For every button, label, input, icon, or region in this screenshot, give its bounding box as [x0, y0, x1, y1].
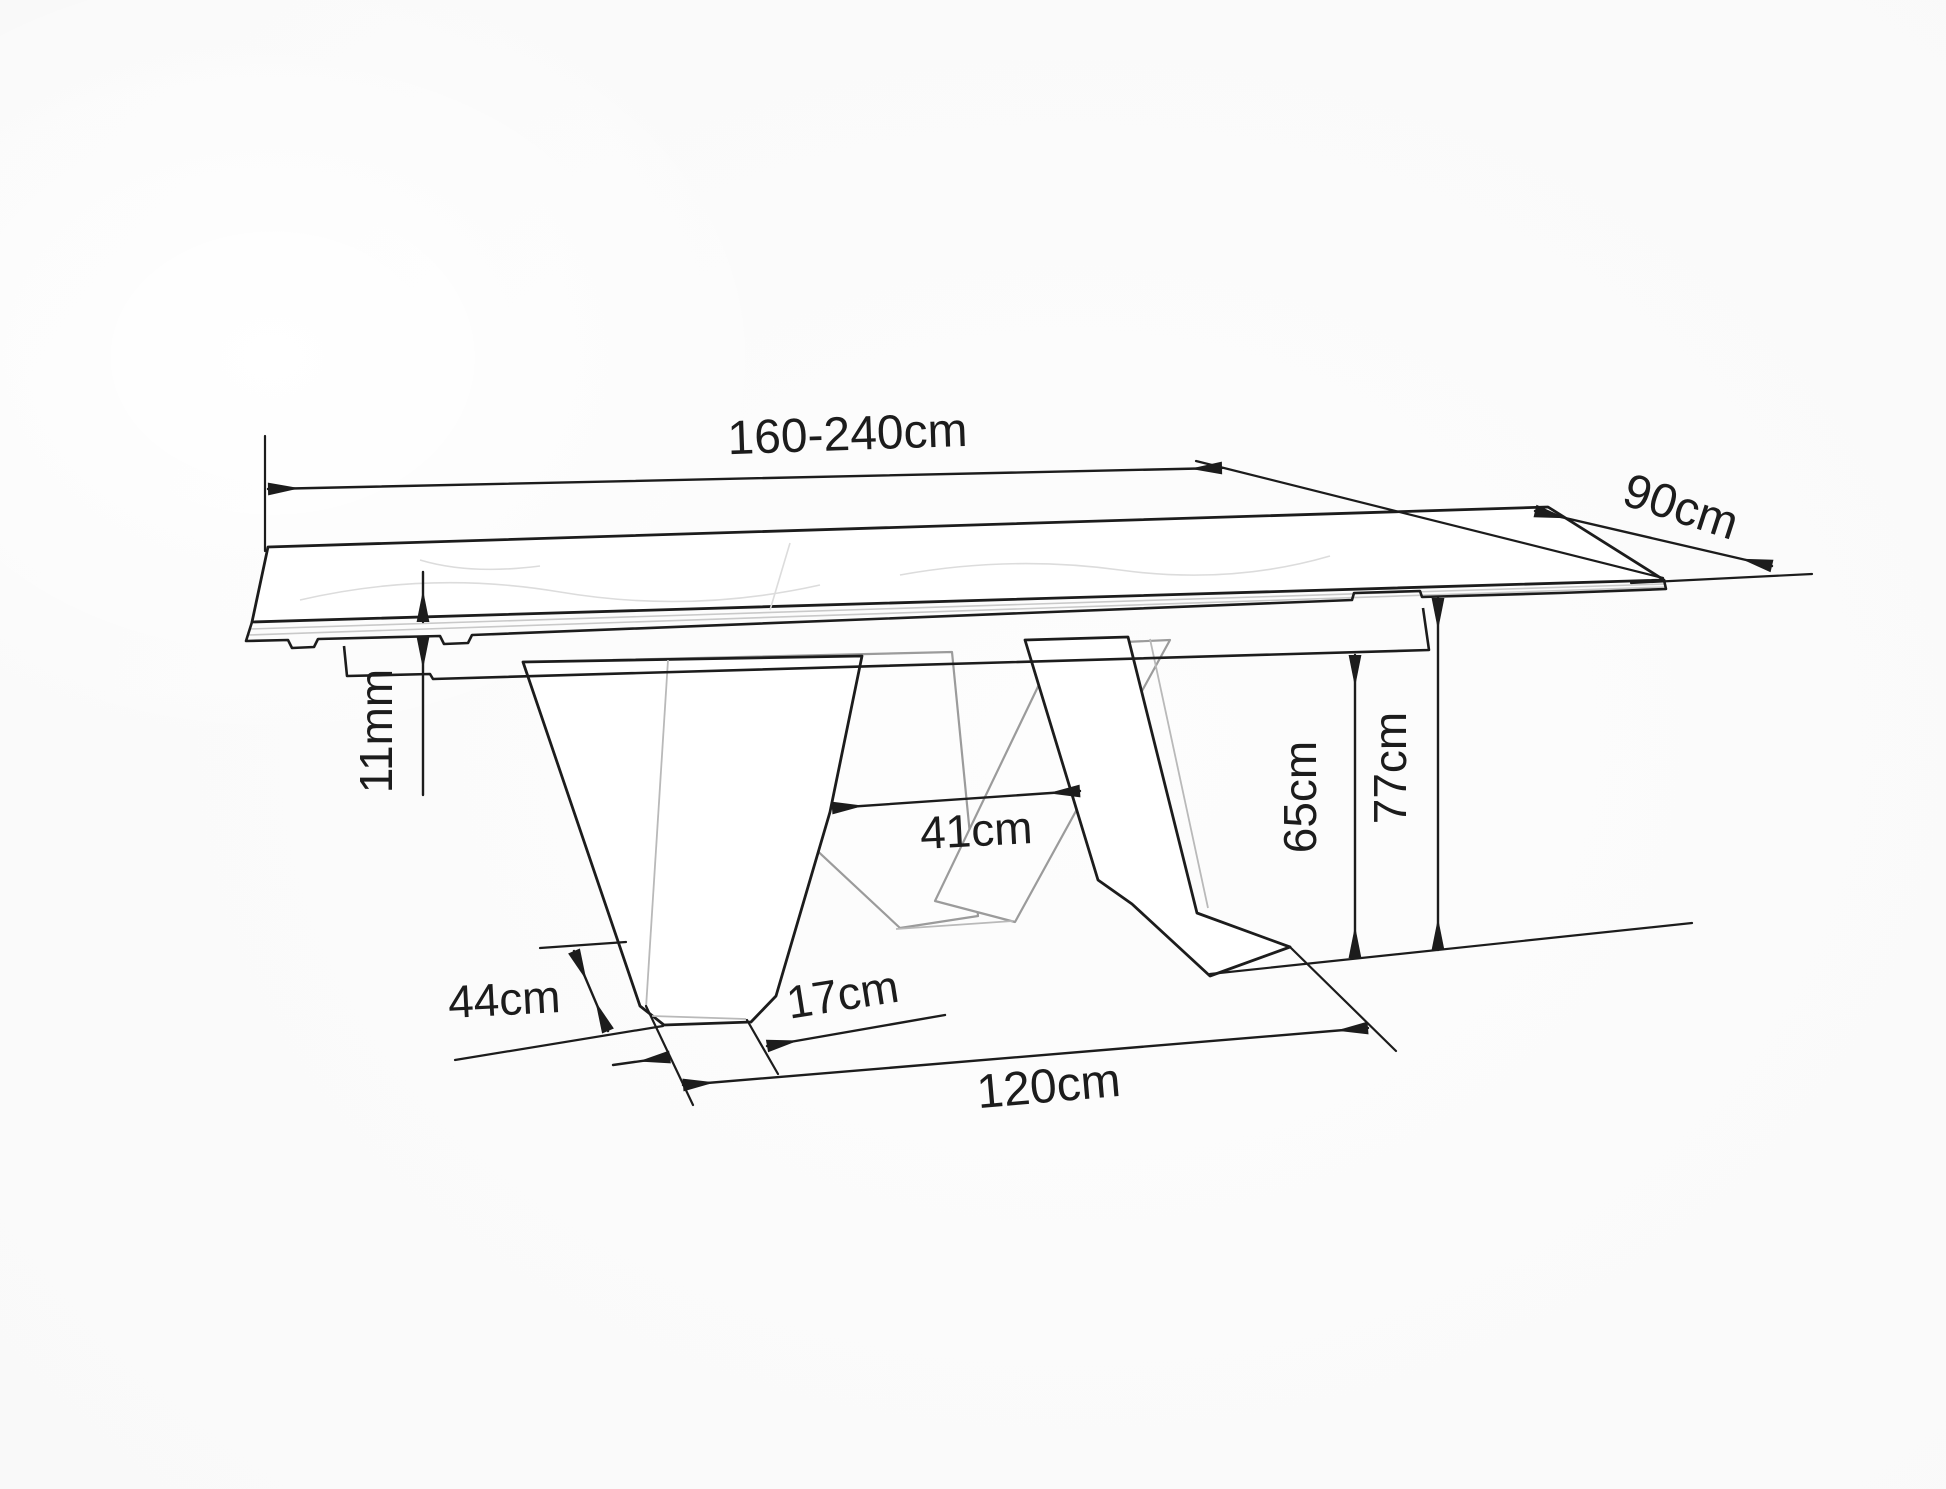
- label-top-thickness: 11mm: [350, 669, 402, 793]
- table-dimension-diagram: 160-240cm 90cm 11mm 41cm 65cm 77cm 44cm …: [0, 0, 1946, 1489]
- ext-foot-right-slash: [747, 1020, 778, 1074]
- dim-line-foot-length: [574, 951, 608, 1031]
- ext-base-right-slash: [1290, 947, 1396, 1051]
- label-table-length: 160-240cm: [727, 404, 969, 465]
- ext-foot-bottom-ref: [455, 1026, 663, 1060]
- label-foot-length: 44cm: [447, 970, 562, 1028]
- label-leg-gap: 41cm: [919, 801, 1034, 859]
- front-left-leg: [523, 656, 862, 1025]
- label-underframe-clearance: 65cm: [1274, 741, 1326, 853]
- label-foot-width: 17cm: [783, 960, 902, 1029]
- ext-foot-top-slash: [540, 942, 626, 948]
- diagram-stage: 160-240cm 90cm 11mm 41cm 65cm 77cm 44cm …: [0, 0, 1946, 1489]
- dim-line-table-length: [268, 468, 1222, 489]
- label-table-depth: 90cm: [1617, 464, 1745, 551]
- label-base-length: 120cm: [975, 1054, 1123, 1119]
- label-table-height: 77cm: [1364, 712, 1416, 824]
- dim-line-foot-width-helper: [613, 1057, 670, 1065]
